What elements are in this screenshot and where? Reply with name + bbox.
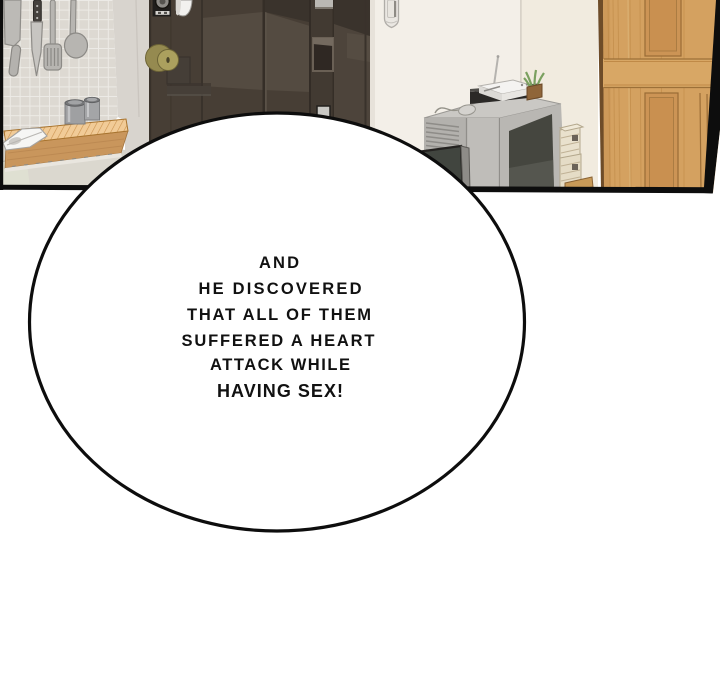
svg-text:HAVING SEX!: HAVING SEX! [217,381,343,401]
svg-text:AND: AND [259,254,299,272]
svg-text:SUFFERED A HEART: SUFFERED A HEART [182,332,375,350]
svg-text:ATTACK WHILE: ATTACK WHILE [210,356,350,374]
svg-text:HE DISCOVERED: HE DISCOVERED [199,280,362,298]
